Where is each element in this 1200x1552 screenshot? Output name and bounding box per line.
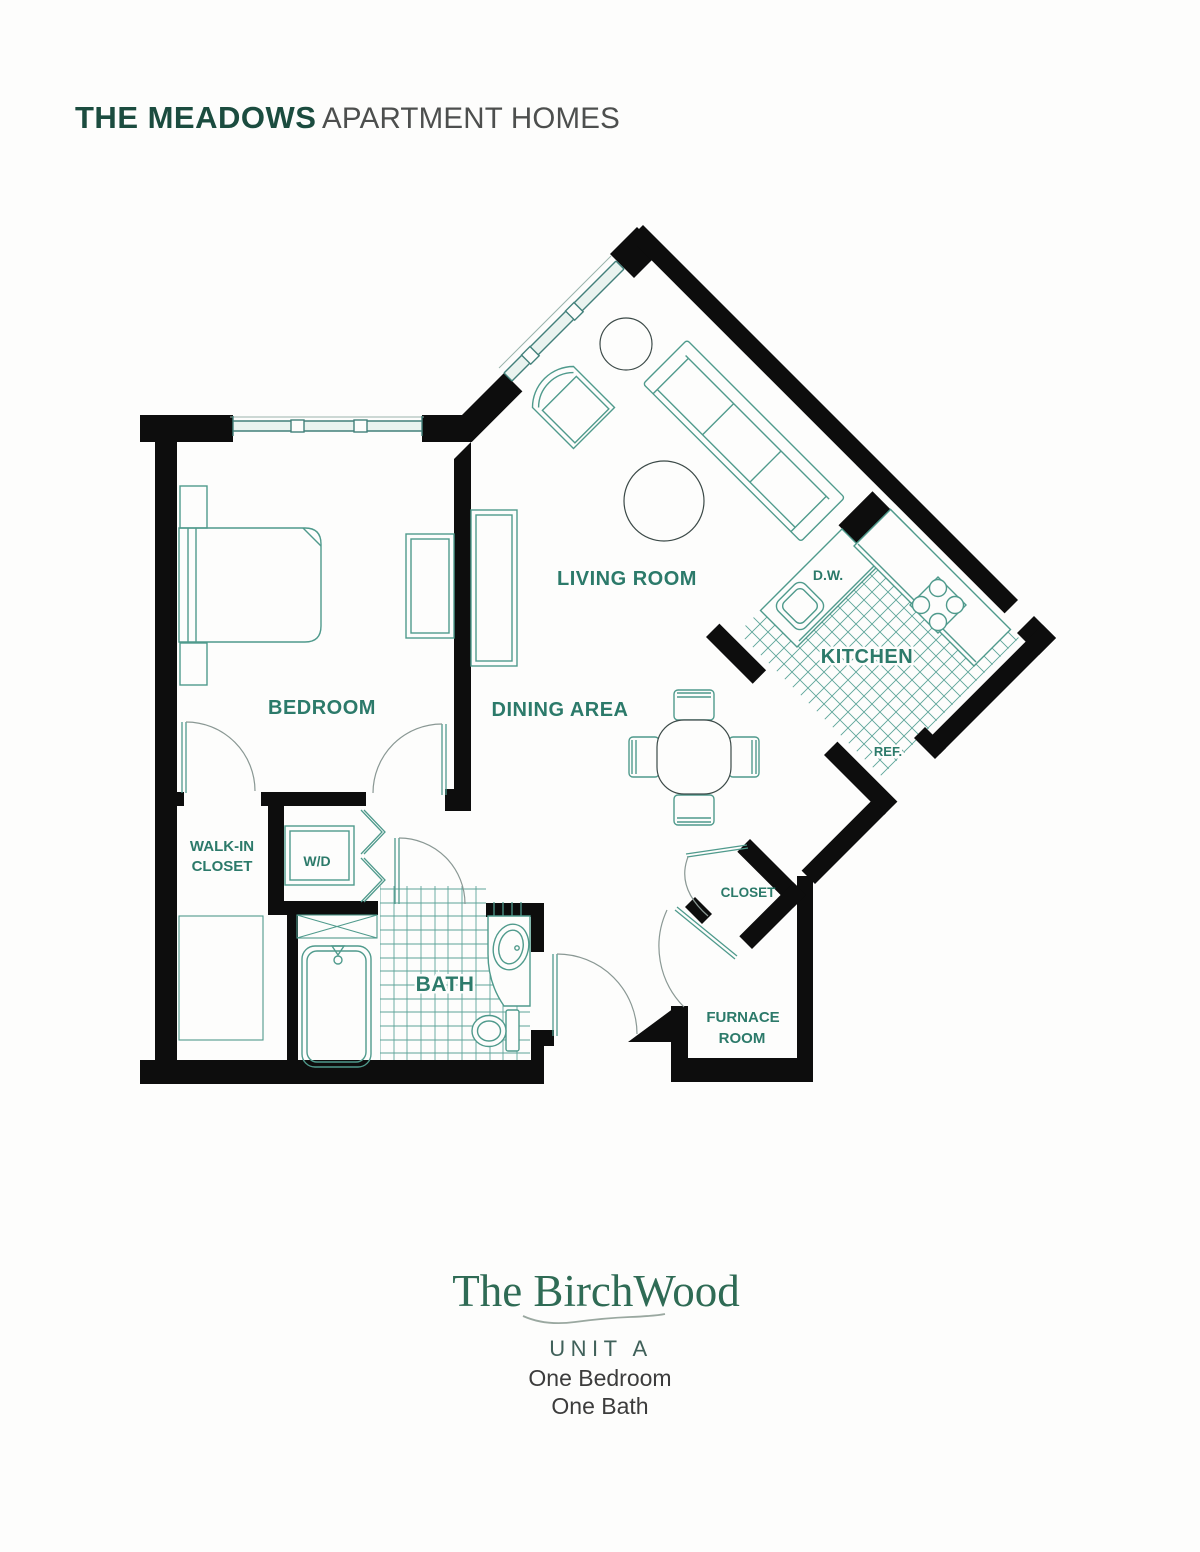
svg-text:UNIT A: UNIT A (549, 1336, 653, 1361)
svg-text:APARTMENT HOMES: APARTMENT HOMES (322, 102, 620, 135)
svg-text:THE MEADOWS: THE MEADOWS (75, 100, 316, 135)
svg-text:W/D: W/D (303, 853, 330, 869)
svg-text:KITCHEN: KITCHEN (821, 646, 913, 668)
svg-text:WALK-IN: WALK-IN (190, 838, 254, 855)
svg-text:DINING AREA: DINING AREA (492, 699, 629, 721)
svg-text:LIVING ROOM: LIVING ROOM (557, 568, 697, 590)
svg-text:CLOSET: CLOSET (721, 885, 777, 900)
svg-text:REF.: REF. (874, 744, 902, 759)
svg-text:BATH: BATH (416, 973, 475, 996)
svg-text:D.W.: D.W. (813, 567, 843, 583)
svg-text:One Bath: One Bath (551, 1393, 648, 1419)
svg-text:BEDROOM: BEDROOM (268, 697, 376, 719)
svg-text:The BirchWood: The BirchWood (452, 1266, 740, 1316)
svg-text:FURNACE: FURNACE (706, 1009, 779, 1026)
svg-text:One Bedroom: One Bedroom (528, 1365, 671, 1391)
svg-text:CLOSET: CLOSET (192, 858, 253, 875)
svg-text:ROOM: ROOM (719, 1030, 766, 1047)
